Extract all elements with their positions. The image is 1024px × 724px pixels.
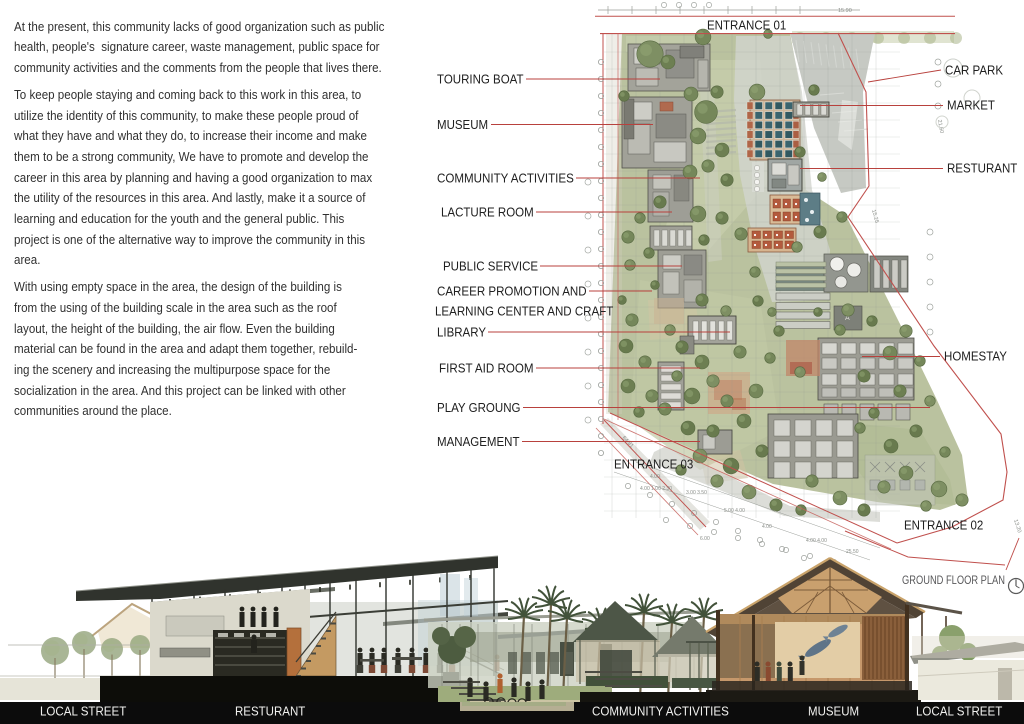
svg-text:CAR PARK: CAR PARK <box>945 63 1003 78</box>
svg-text:RESTURANT: RESTURANT <box>947 161 1017 176</box>
svg-text:MUSEUM: MUSEUM <box>808 705 859 719</box>
svg-text:ENTRANCE 01: ENTRANCE 01 <box>707 18 786 33</box>
svg-text:13.20: 13.20 <box>1012 519 1022 534</box>
svg-text:LOCAL STREET: LOCAL STREET <box>916 705 1003 719</box>
svg-text:LEARNING CENTER AND CRAFT: LEARNING CENTER AND CRAFT <box>435 304 613 319</box>
svg-text:COMMUNITY ACTIVITIES: COMMUNITY ACTIVITIES <box>592 705 729 719</box>
svg-text:ENTRANCE 02: ENTRANCE 02 <box>904 518 983 533</box>
svg-text:RESTURANT: RESTURANT <box>235 705 306 719</box>
svg-text:PUBLIC SERVICE: PUBLIC SERVICE <box>443 259 538 274</box>
svg-text:TOURING BOAT: TOURING BOAT <box>437 72 524 87</box>
svg-text:LOCAL STREET: LOCAL STREET <box>40 705 127 719</box>
svg-text:MANAGEMENT: MANAGEMENT <box>437 434 520 449</box>
svg-text:4.00 1.00 2.30: 4.00 1.00 2.30 <box>640 486 672 492</box>
svg-text:6.00: 6.00 <box>700 536 710 542</box>
svg-text:15.90: 15.90 <box>838 8 852 14</box>
svg-text:CAREER PROMOTION AND: CAREER PROMOTION AND <box>437 284 587 299</box>
svg-text:ENTRANCE 03: ENTRANCE 03 <box>614 457 693 472</box>
svg-text:HOMESTAY: HOMESTAY <box>944 349 1007 364</box>
svg-text:3.00 3.50: 3.00 3.50 <box>686 490 707 496</box>
svg-text:15.25: 15.25 <box>870 209 879 224</box>
svg-text:4.00: 4.00 <box>650 474 660 480</box>
svg-text:MUSEUM: MUSEUM <box>437 117 488 132</box>
svg-text:FIRST AID ROOM: FIRST AID ROOM <box>439 361 534 376</box>
svg-text:COMMUNITY ACTIVITIES: COMMUNITY ACTIVITIES <box>437 171 574 186</box>
svg-text:21.60: 21.60 <box>936 119 944 134</box>
svg-text:LACTURE ROOM: LACTURE ROOM <box>441 205 534 220</box>
svg-text:GROUND FLOOR PLAN: GROUND FLOOR PLAN <box>902 573 1005 587</box>
svg-text:LIBRARY: LIBRARY <box>437 325 486 340</box>
svg-text:MARKET: MARKET <box>947 98 995 113</box>
svg-text:PLAY GROUNG: PLAY GROUNG <box>437 400 521 415</box>
svg-text:4.00: 4.00 <box>762 524 772 530</box>
